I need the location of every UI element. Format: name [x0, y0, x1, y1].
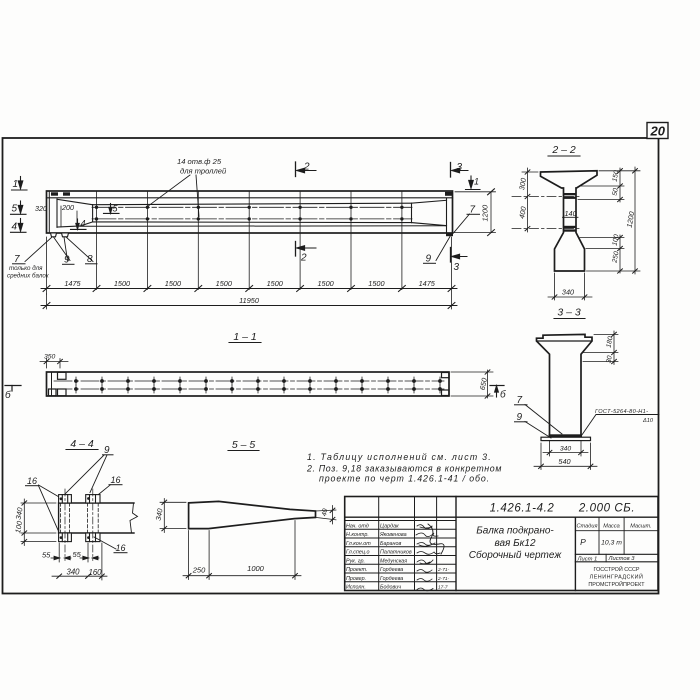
svg-text:Провер.: Провер.	[346, 576, 366, 582]
svg-text:Баранов: Баранов	[380, 541, 401, 547]
svg-text:350: 350	[44, 354, 56, 361]
svg-text:Гордеева: Гордеева	[380, 567, 403, 573]
svg-text:2: 2	[300, 253, 307, 264]
svg-text:140: 140	[565, 209, 577, 218]
svg-text:б: б	[5, 389, 11, 401]
svg-text:1500: 1500	[216, 279, 232, 288]
svg-text:Стадия: Стадия	[577, 524, 598, 530]
svg-text:Листов 3: Листов 3	[608, 556, 636, 562]
svg-text:Лист 1: Лист 1	[577, 556, 598, 562]
svg-text:160: 160	[88, 568, 102, 577]
svg-text:1: 1	[474, 177, 479, 187]
svg-text:Масса: Масса	[603, 524, 620, 530]
svg-text:ЛЕНИНГРАДСКИЙ: ЛЕНИНГРАДСКИЙ	[590, 573, 644, 581]
svg-text:Рук. гр.: Рук. гр.	[346, 558, 365, 564]
svg-text:ГОСТ-5264-80-Н1-: ГОСТ-5264-80-Н1-	[595, 409, 648, 415]
svg-text:14 отв.ф 25: 14 отв.ф 25	[177, 157, 222, 166]
svg-text:16: 16	[111, 475, 121, 485]
svg-text:б: б	[500, 389, 506, 401]
svg-text:4: 4	[81, 219, 86, 229]
svg-text:5 – 5: 5 – 5	[232, 439, 256, 451]
svg-text:2-71-: 2-71-	[437, 576, 450, 582]
svg-text:1475: 1475	[419, 279, 436, 288]
svg-text:250: 250	[611, 251, 620, 265]
svg-text:100: 100	[612, 234, 621, 247]
svg-text:1000: 1000	[247, 564, 265, 573]
svg-text:1500: 1500	[267, 279, 283, 288]
svg-text:16: 16	[27, 476, 37, 486]
svg-text:Н.контр.: Н.контр.	[346, 532, 369, 538]
svg-text:проекте по черт 1.426.1-41: проекте по черт 1.426.1-41 / обо.	[319, 474, 490, 484]
svg-text:2. Поз. 9,18 заказываются в ко: 2. Поз. 9,18 заказываются в конкретном	[306, 464, 502, 474]
svg-text:2.000 СБ.: 2.000 СБ.	[578, 503, 635, 515]
svg-text:200: 200	[61, 203, 74, 212]
svg-text:Яковенова: Яковенова	[379, 532, 407, 538]
svg-text:Проект.: Проект.	[346, 567, 367, 573]
svg-text:только для: только для	[9, 265, 43, 272]
svg-text:Балка подкрано-: Балка подкрано-	[476, 526, 554, 537]
svg-text:150: 150	[612, 170, 621, 183]
svg-text:1. Таблицу исполнений см. лис: 1. Таблицу исполнений см. лист 3.	[307, 452, 492, 462]
svg-text:250: 250	[192, 566, 206, 575]
svg-text:1500: 1500	[368, 279, 384, 288]
svg-text:17-7: 17-7	[438, 585, 448, 591]
svg-text:1500: 1500	[165, 279, 181, 288]
svg-text:2 – 2: 2 – 2	[551, 144, 576, 156]
svg-text:1.426.1-4.2: 1.426.1-4.2	[490, 503, 555, 515]
svg-text:2: 2	[303, 162, 310, 173]
svg-text:ГОССТРОЙ СССР: ГОССТРОЙ СССР	[593, 565, 639, 573]
svg-text:Гл.спец.о: Гл.спец.о	[346, 550, 369, 556]
svg-text:1500: 1500	[114, 279, 130, 288]
svg-text:11950: 11950	[239, 296, 259, 305]
svg-text:3: 3	[454, 262, 460, 273]
svg-text:10,3 т: 10,3 т	[601, 540, 622, 547]
svg-text:1 – 1: 1 – 1	[233, 331, 256, 343]
svg-text:ПРОМСТРОЙПРОЕКТ: ПРОМСТРОЙПРОЕКТ	[588, 580, 645, 588]
svg-text:20: 20	[650, 124, 666, 139]
svg-text:50: 50	[612, 187, 620, 196]
svg-text:2-71-: 2-71-	[437, 567, 450, 573]
svg-text:4: 4	[12, 222, 18, 233]
svg-text:340: 340	[560, 446, 572, 453]
svg-text:40: 40	[321, 508, 329, 517]
svg-text:3 – 3: 3 – 3	[557, 307, 581, 319]
svg-text:340: 340	[14, 507, 25, 521]
svg-text:Масшт.: Масшт.	[630, 524, 651, 530]
svg-text:300: 300	[517, 177, 528, 191]
svg-text:1500: 1500	[317, 279, 333, 288]
svg-text:340: 340	[154, 508, 165, 522]
svg-text:вая Бк12: вая Бк12	[494, 538, 535, 549]
svg-text:Гл.кон.от: Гл.кон.от	[346, 541, 371, 547]
svg-text:30: 30	[606, 355, 614, 364]
svg-text:320: 320	[35, 204, 47, 213]
svg-text:Медунская: Медунская	[380, 558, 407, 564]
svg-text:3: 3	[457, 162, 463, 173]
svg-text:1200: 1200	[625, 211, 637, 229]
svg-text:средних балок: средних балок	[7, 273, 50, 280]
svg-text:Цардак: Цардак	[380, 523, 399, 529]
svg-text:55: 55	[73, 550, 82, 559]
svg-text:340: 340	[562, 288, 574, 297]
svg-text:Гордеева: Гордеева	[380, 576, 403, 582]
svg-text:16: 16	[116, 543, 126, 553]
svg-text:Нач. отд: Нач. отд	[346, 523, 369, 529]
svg-text:100: 100	[13, 520, 24, 534]
svg-text:180: 180	[606, 336, 615, 349]
svg-text:для троллей: для троллей	[180, 167, 227, 176]
svg-text:Сборочный чертеж: Сборочный чертеж	[469, 549, 563, 561]
svg-text:400: 400	[517, 206, 528, 220]
svg-text:Палатников: Палатников	[380, 550, 412, 556]
svg-text:Р: Р	[580, 537, 586, 547]
svg-text:1200: 1200	[481, 204, 490, 222]
svg-text:Бодович: Бодович	[380, 585, 401, 591]
svg-text:55: 55	[42, 551, 51, 560]
svg-text:Исполн.: Исполн.	[346, 585, 366, 591]
svg-text:5: 5	[12, 204, 18, 215]
svg-text:540: 540	[558, 457, 570, 466]
svg-text:1475: 1475	[64, 279, 81, 288]
svg-text:1: 1	[13, 179, 19, 190]
svg-text:340: 340	[66, 568, 80, 577]
svg-text:4 – 4: 4 – 4	[70, 438, 94, 450]
svg-text:Δ10: Δ10	[642, 418, 654, 424]
